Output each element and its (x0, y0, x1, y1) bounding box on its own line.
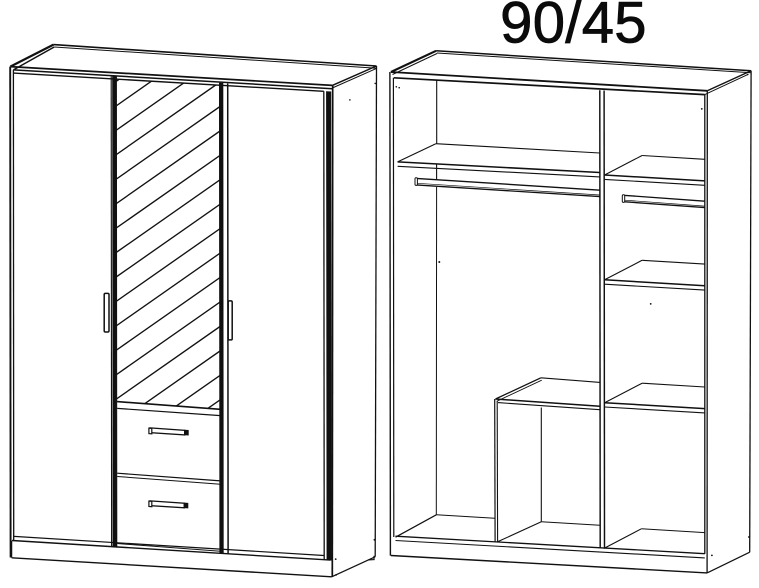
svg-text:90/45: 90/45 (500, 0, 647, 55)
